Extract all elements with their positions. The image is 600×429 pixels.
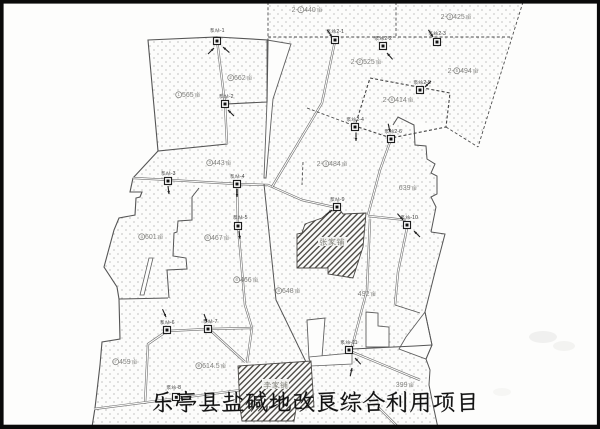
svg-text:2-: 2-	[292, 7, 299, 14]
svg-text:440: 440	[304, 7, 316, 14]
svg-text:2-: 2-	[441, 14, 448, 21]
svg-text:-1: -1	[220, 28, 225, 34]
svg-text:2-6: 2-6	[394, 129, 402, 135]
svg-text:-3: -3	[171, 171, 176, 177]
svg-text:2-2: 2-2	[384, 36, 392, 42]
svg-text:-6: -6	[170, 320, 175, 326]
svg-text:2-1: 2-1	[336, 29, 344, 35]
svg-text:-10: -10	[410, 215, 418, 221]
svg-text:614.5: 614.5	[202, 363, 220, 370]
svg-text:-8: -8	[176, 385, 181, 391]
svg-text:2-: 2-	[448, 68, 455, 75]
svg-text:2-4: 2-4	[356, 117, 364, 123]
svg-text:-4: -4	[240, 174, 245, 180]
svg-text:662: 662	[234, 75, 246, 82]
svg-text:466: 466	[240, 277, 252, 284]
svg-text:2-: 2-	[383, 97, 390, 104]
svg-text:-5: -5	[243, 215, 248, 221]
svg-text:2-: 2-	[317, 161, 324, 168]
svg-text:425: 425	[453, 14, 465, 21]
svg-text:-7: -7	[213, 319, 218, 325]
svg-text:459: 459	[119, 359, 131, 366]
svg-text:443: 443	[213, 160, 225, 167]
svg-text:-11: -11	[350, 340, 357, 346]
svg-text:2-3: 2-3	[438, 31, 446, 37]
svg-text:414: 414	[395, 97, 407, 104]
svg-text:525: 525	[363, 59, 375, 66]
svg-text:565: 565	[182, 92, 194, 99]
svg-text:639: 639	[399, 185, 411, 192]
svg-text:467: 467	[211, 235, 223, 242]
svg-text:-9: -9	[340, 197, 345, 203]
svg-text:2-: 2-	[351, 59, 358, 66]
svg-text:492: 492	[358, 291, 370, 298]
svg-text:494: 494	[460, 68, 472, 75]
svg-text:648: 648	[282, 288, 294, 295]
svg-text:484: 484	[329, 161, 341, 168]
svg-text:601: 601	[145, 234, 157, 241]
svg-text:399: 399	[396, 382, 408, 389]
svg-text:-2: -2	[229, 94, 234, 100]
